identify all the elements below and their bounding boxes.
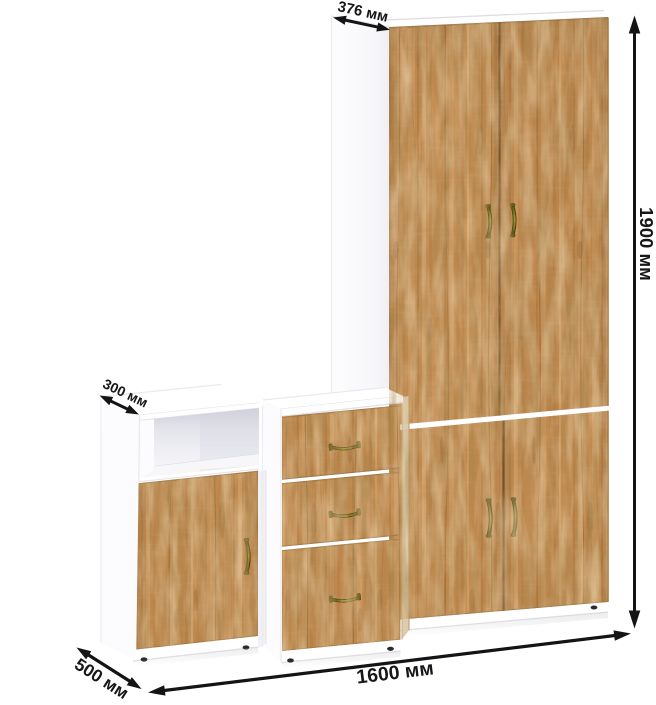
svg-text:1900 мм: 1900 мм	[636, 207, 656, 281]
